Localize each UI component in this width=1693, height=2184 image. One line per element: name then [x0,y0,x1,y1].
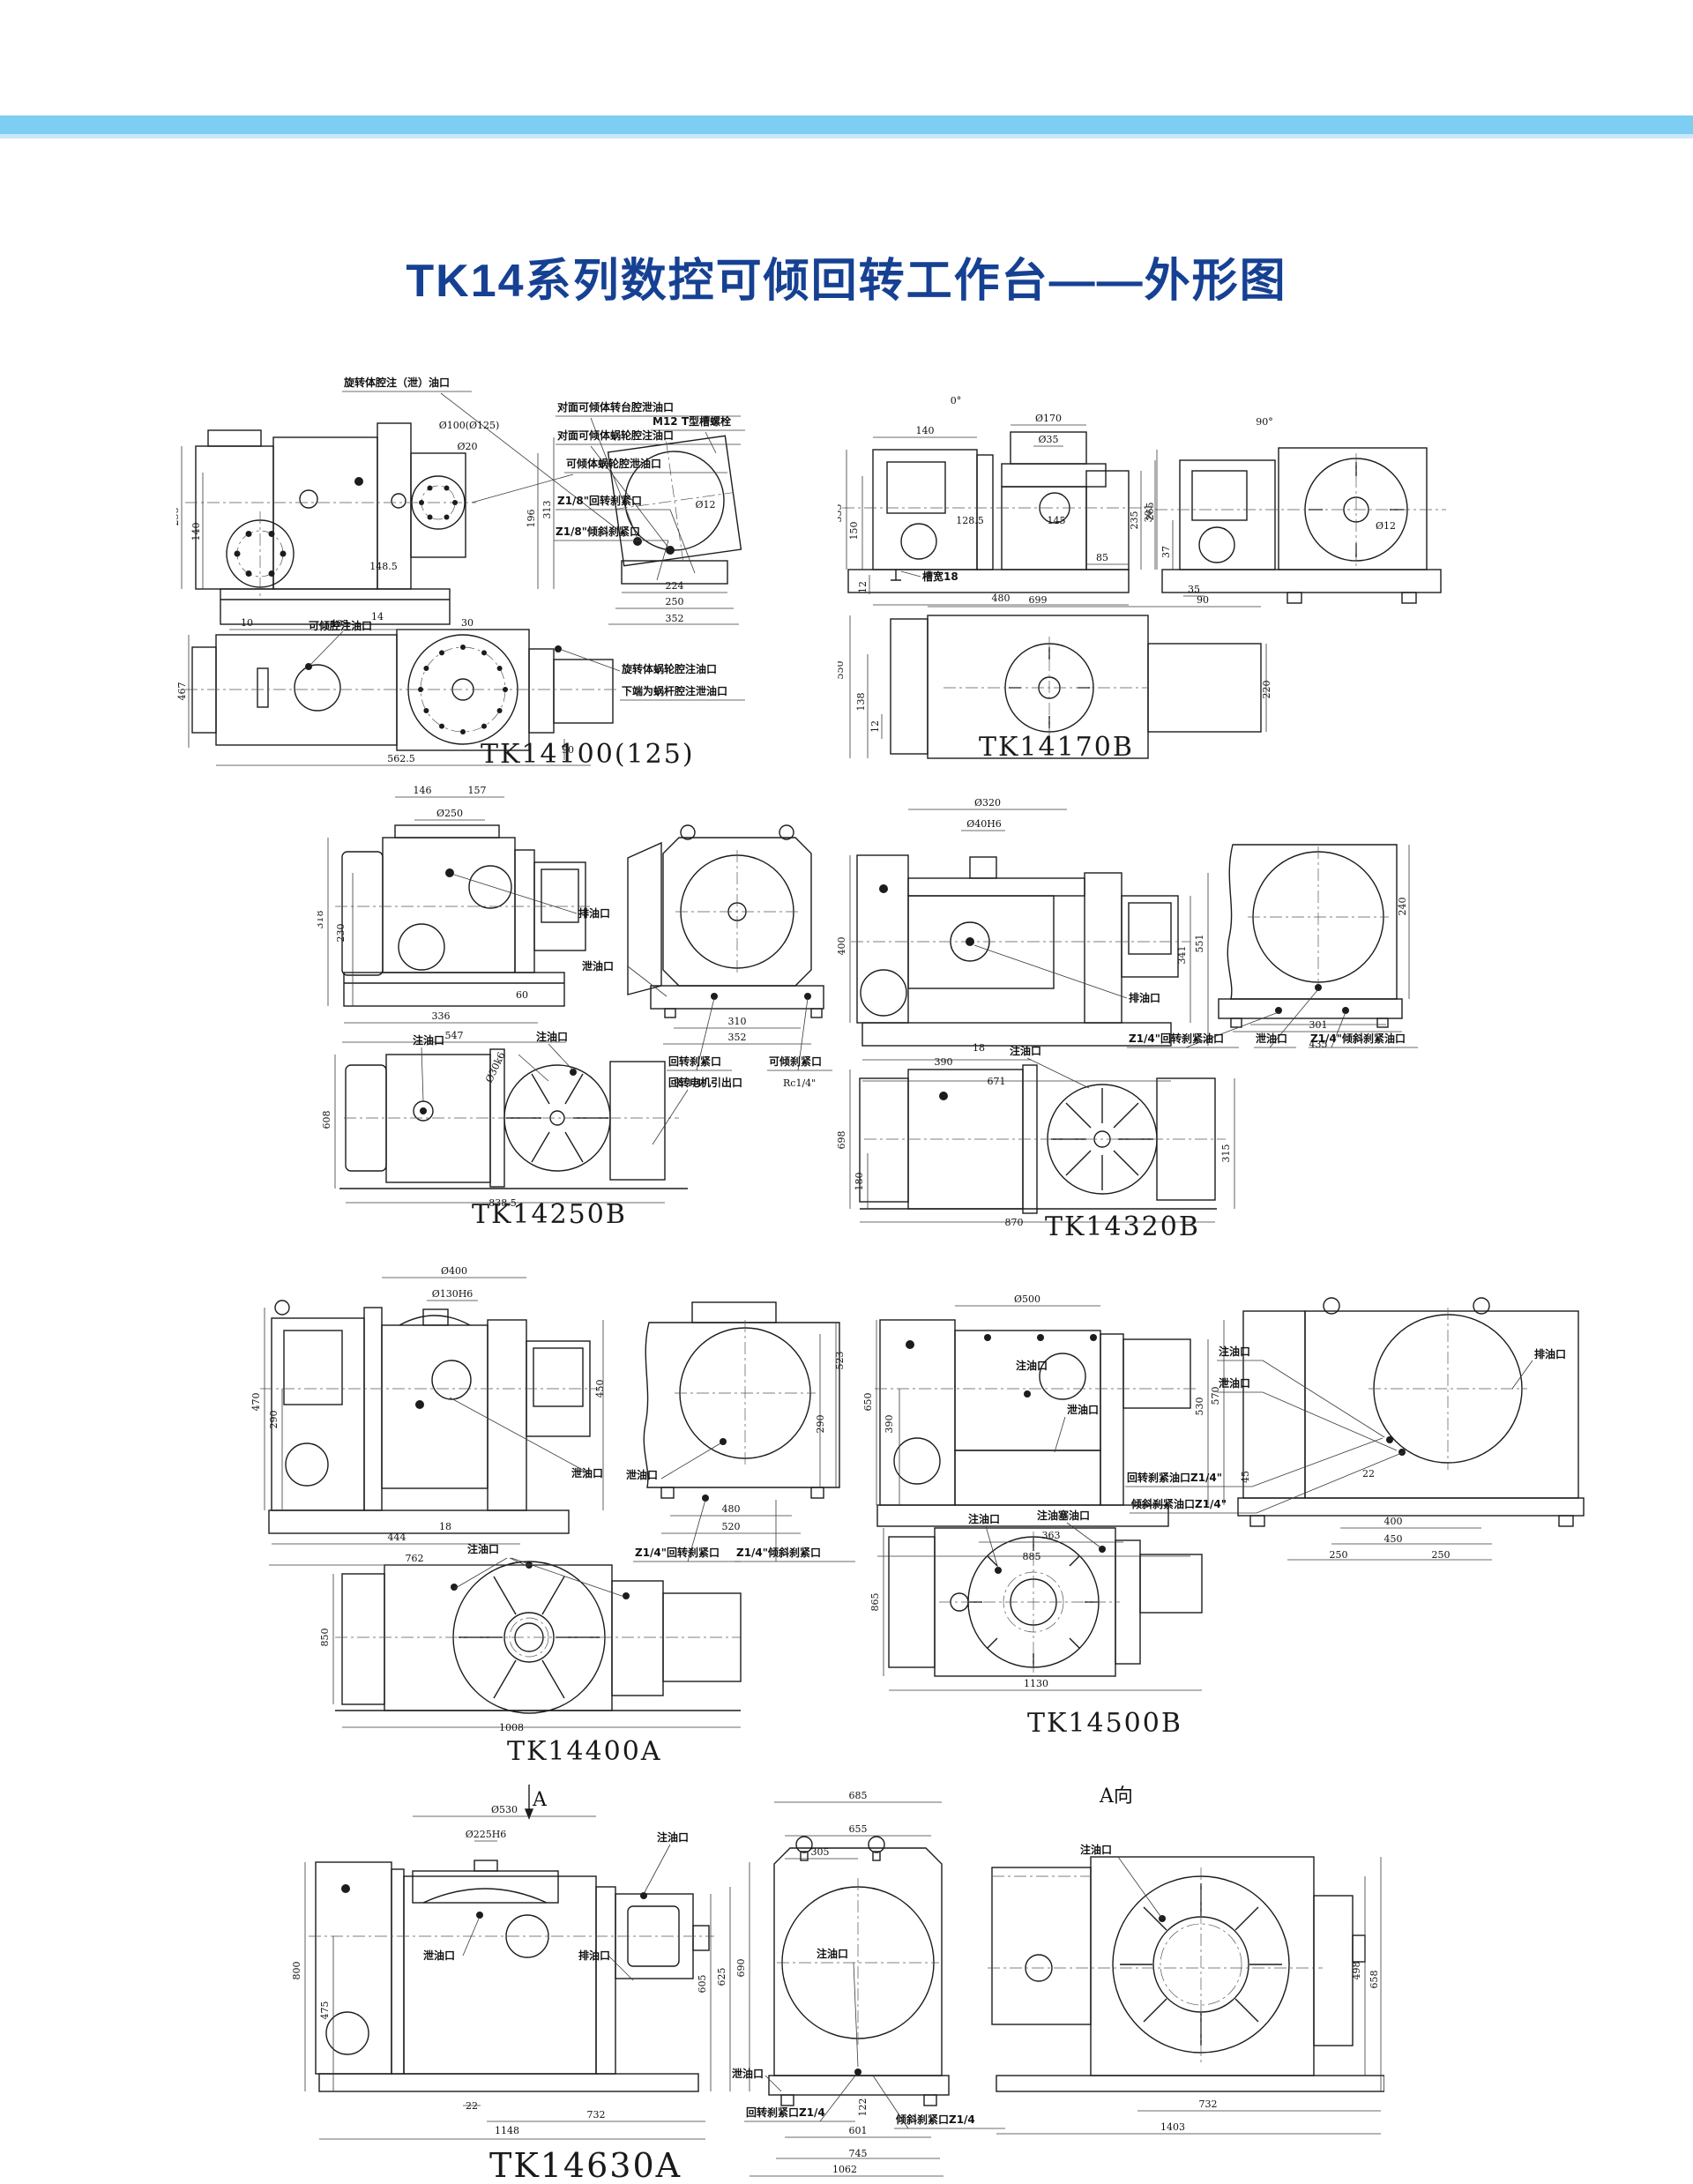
dim-label: 305 [811,1846,830,1858]
dim-label: 30 [461,617,474,629]
drawing-tk14500b: Ø500650390363885530570注油口泄油口452240045025… [864,1256,1605,1750]
dim-label: 390 [884,1415,895,1434]
dim-label: 238 [176,508,181,526]
dim-label: 138 [855,693,867,712]
page-title: TK14系列数控可倾回转工作台——外形图 [0,243,1693,309]
model-label-tk14500b: TK14500B [1027,1708,1182,1739]
dim-label: 148.5 [369,561,398,572]
callout-label: 对面可倾体蜗轮腔注油口 [557,429,674,442]
callout-label: 旋转体蜗轮腔注油口 [621,662,717,675]
callout-label: 泄油口 [423,1949,455,1962]
callout-label: 对面可倾体转台腔泄油口 [557,400,674,414]
callout-label: 泄油口 [626,1468,658,1481]
header-stripe-shadow [0,134,1693,138]
dim-label: 18 [439,1521,451,1532]
dim-label: 341 [1176,946,1188,965]
dim-label: 530 [1194,1398,1205,1416]
dim-label: 1403 [1160,2121,1185,2133]
callout-label: 倾斜刹紧油口Z1/4" [1130,1497,1227,1510]
dim-label: 762 [406,1553,424,1564]
dim-label: 732 [587,2109,606,2121]
callout-label: 注油口 [968,1512,1000,1525]
callout-label: 注油塞油口 [1037,1509,1090,1522]
callout-label: 回转电机引出口 [668,1076,742,1089]
dim-label: 551 [1194,935,1205,953]
dim-label: Rc1/4" [783,1077,816,1089]
dim-label: 671 [988,1076,1006,1087]
dim-label: 318 [317,911,325,929]
callout-label: 注油口 [1219,1345,1250,1358]
dim-label: Ø320 [974,797,1001,809]
dim-label: 157 [468,785,487,796]
callout-label: 排油口 [578,906,610,920]
dim-label: 22 [466,2100,478,2112]
dim-label: 128.5 [956,515,984,526]
callout-label: 可倾体蜗轮腔泄油口 [566,457,661,470]
dim-label: Ø400 [441,1265,467,1277]
dim-label: 290 [815,1415,826,1434]
dim-label: 1130 [1024,1678,1048,1689]
drawing-tk14170b: 140Ø170Ø35355150128.514523526585124800°9… [838,379,1455,785]
dim-label: Ø130H6 [432,1288,474,1300]
callout-label: Z1/4"回转刹紧口 [635,1546,720,1559]
dim-label: 655 [849,1823,868,1835]
callout-label: 注油口 [1010,1044,1041,1057]
dim-label: 150 [848,522,860,540]
callout-label: 旋转体腔注（泄）油口 [343,376,450,389]
dim-label: Ø530 [491,1804,518,1815]
drawing-canvas-tk14320b: Ø320Ø40H640039067118341551301435240排油口Z1… [838,774,1420,1234]
callout-label: 排油口 [1129,991,1160,1004]
callout-label: Z1/8"倾斜刹紧口 [556,525,640,538]
dim-label: 363 [1042,1530,1061,1541]
dim-label: 650 [864,1393,874,1412]
callout-label: 泄油口 [1256,1032,1287,1045]
dim-label: 12 [869,720,881,733]
dim-label: 140 [190,523,202,541]
dim-label: 480 [992,593,1011,604]
drawing-tk14320b: Ø320Ø40H640039067118341551301435240排油口Z1… [838,774,1420,1234]
dim-label: 122 [857,2098,869,2117]
dim-label: 1008 [499,1722,524,1733]
dim-label: Ø12 [695,499,715,511]
dim-label: 145 [1048,515,1066,526]
header-stripe [0,116,1693,134]
dim-label: 60 [516,989,528,1001]
dim-label: 0° [951,395,962,406]
dim-label: 885 [1023,1551,1041,1562]
dim-label: 352 [728,1032,747,1043]
dim-label: 250 [1432,1549,1451,1561]
dim-label: Ø225H6 [466,1829,507,1840]
dim-label: 690 [735,1959,747,1978]
callout-label: 回转刹紧油口Z1/4" [1127,1471,1222,1484]
dim-label: 475 [319,2001,331,2020]
dim-label: 400 [1384,1516,1403,1527]
dim-label: 547 [445,1030,464,1041]
dim-label: 235 [1129,511,1140,530]
dim-label: 562.5 [387,753,415,764]
callout-label: 泄油口 [732,2067,764,2080]
dim-label: 196 [526,510,537,528]
dim-label: 605 [697,1975,708,1994]
dim-label: 315 [1220,1144,1232,1163]
dim-label: 240 [1397,898,1408,916]
callout-label: 可倾刹紧口 [769,1055,822,1068]
dim-label: 390 [935,1056,953,1068]
dim-label: Ø170 [1035,413,1062,424]
dim-label: Ø250 [436,808,463,819]
dim-label: Ø500 [1014,1293,1040,1305]
dim-label: 12 [857,581,869,593]
drawing-canvas-tk14400a: Ø400Ø130H647029044476218450523290480520泄… [247,1256,864,1763]
drawing-canvas-tk14500b: Ø500650390363885530570注油口泄油口452240045025… [864,1256,1605,1750]
catalog-page: TK14系列数控可倾回转工作台——外形图 [0,0,1693,2184]
dim-label: 301 [1309,1019,1328,1031]
dim-label: 220 [1261,681,1272,699]
dim-label: 301 [1143,504,1154,523]
dim-label: 310 [728,1016,747,1027]
dim-label: Ø35 [1038,434,1058,445]
callout-label: Z1/4"倾斜刹紧口 [736,1546,821,1559]
dim-label: 224 [666,580,684,592]
dim-label: 450 [1384,1533,1403,1545]
dim-label: 313 [541,501,553,519]
callout-label: 注油口 [817,1947,848,1960]
model-label-tk14100: TK14100(125) [481,739,695,770]
dim-label: 498 [1351,1962,1362,1980]
callout-label: Z1/4"倾斜刹紧油口 [1310,1032,1406,1045]
model-label-tk14400a: TK14400A [507,1736,662,1767]
dim-label: 355 [838,504,844,523]
dim-label: 22 [1362,1468,1375,1480]
callout-label: 注油口 [1080,1843,1112,1856]
dim-label: Ø40H6 [966,818,1002,830]
callout-label: 回转刹紧口 [668,1055,721,1068]
dim-label: 450 [594,1380,606,1398]
model-label-tk14320b: TK14320B [1045,1211,1200,1242]
dim-label: 732 [1199,2098,1218,2110]
callout-label: 注油口 [1016,1359,1048,1372]
dim-label: 800 [291,1962,302,1980]
callout-label: 泄油口 [1219,1376,1250,1390]
drawing-canvas-tk14100: Ø100(Ø125)Ø202381401963131040514148.5Ø12… [176,369,745,792]
dim-label: 14 [371,611,384,622]
dim-label: 601 [849,2125,868,2136]
model-label-tk14630a: TK14630A [489,2146,682,2184]
dim-label: 870 [1005,1217,1024,1228]
callout-label: 倾斜刹紧口Z1/4 [895,2113,975,2126]
dim-label: Ø12 [1376,520,1396,532]
dim-label: 850 [319,1629,331,1647]
dim-label: 470 [250,1393,262,1412]
drawing-canvas-tk14630a: Ø530Ø225H6800475605625690227321148注油口泄油口… [291,1763,1384,2184]
view-label: A向 [1099,1785,1133,1808]
dim-label: 625 [716,1968,727,1986]
dim-label: 550 [838,661,846,680]
dim-label: 180 [854,1173,865,1191]
dim-label: 90 [1197,594,1209,606]
callout-label: 可倾腔注油口 [309,619,372,632]
callout-label: 注油口 [657,1830,689,1844]
callout-label: 泄油口 [582,959,614,973]
dim-label: 336 [432,1010,451,1022]
dim-label: 865 [869,1593,881,1612]
dim-label: 1148 [495,2125,519,2136]
callout-label: 排油口 [578,1949,610,1962]
callout-label: Z1/4"回转刹紧油口 [1129,1032,1224,1045]
drawing-canvas-tk14250b: 146157Ø25031823033654760310352排油口泄油口回转刹紧… [317,774,846,1234]
dim-label: 37 [1160,546,1172,558]
dim-label: 290 [268,1411,280,1429]
callout-label: M12 T型槽螺栓 [653,414,731,428]
callout-label: Z1/8"回转刹紧口 [557,494,642,507]
callout-label: 下端为蜗杆腔注泄油口 [622,684,727,697]
callout-label: 泄油口 [571,1466,603,1480]
model-label-tk14250b: TK14250B [472,1199,627,1230]
callout-label: 注油口 [413,1033,444,1047]
dim-label: Ø20 [457,441,477,452]
dim-label: 250 [1330,1549,1348,1561]
dim-label: 467 [176,682,188,701]
drawing-tk14100: Ø100(Ø125)Ø202381401963131040514148.5Ø12… [176,369,745,792]
callout-label: 注油口 [536,1030,568,1043]
dim-label: 608 [321,1111,332,1129]
dim-label: 480 [722,1503,741,1515]
callout-label: 回转刹紧口Z1/4 [746,2106,825,2119]
drawing-tk14250b: 146157Ø25031823033654760310352排油口泄油口回转刹紧… [317,774,846,1234]
dim-label: 140 [916,425,935,436]
drawing-tk14400a: Ø400Ø130H647029044476218450523290480520泄… [247,1256,864,1763]
dim-label: 85 [1096,552,1108,563]
drawing-canvas-tk14170b: 140Ø170Ø35355150128.514523526585124800°9… [838,379,1455,785]
drawing-tk14630a: Ø530Ø225H6800475605625690227321148注油口泄油口… [291,1763,1384,2184]
dim-label: 698 [838,1131,847,1150]
dim-label: Ø100(Ø125) [439,420,500,431]
callout-label: 泄油口 [1067,1403,1099,1416]
callout-label: 排油口 [1534,1347,1566,1360]
dim-label: 400 [838,937,847,956]
dim-label: 352 [666,613,684,624]
dim-label: 230 [335,924,347,943]
dim-label: 520 [722,1521,741,1532]
callout-label: 注油口 [467,1542,499,1555]
view-label: A [532,1789,548,1811]
dim-label: 90° [1256,416,1273,428]
dim-label: 745 [849,2148,868,2159]
dim-label: 1062 [832,2164,857,2175]
dim-label: 523 [834,1352,846,1370]
dim-label: 10 [241,617,253,629]
callout-label: 槽宽18 [922,570,958,583]
model-label-tk14170b: TK14170B [979,732,1134,763]
dim-label: 146 [414,785,432,796]
dim-label: 18 [973,1042,985,1054]
dim-label: 444 [388,1532,406,1543]
dim-label: 250 [666,596,684,607]
dim-label: 45 [1240,1471,1251,1483]
dim-label: 699 [1029,594,1048,606]
dim-label: 685 [849,1790,868,1801]
dim-label: 658 [1369,1971,1380,1989]
